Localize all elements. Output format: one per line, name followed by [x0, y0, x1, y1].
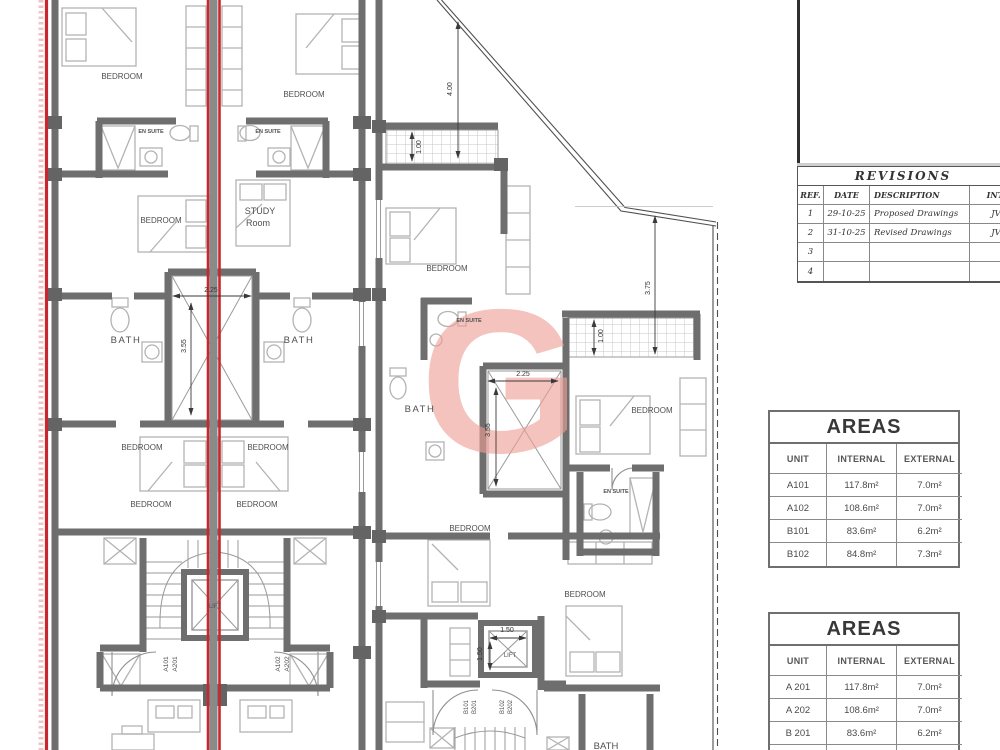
column-header: EXTERNAL [897, 646, 962, 676]
table-cell: B 201 [770, 722, 827, 745]
table-cell: 84.8m² [827, 543, 897, 566]
room-label: Room [246, 218, 270, 228]
unit-label: B202 [508, 699, 514, 714]
room-label: LIFT [504, 653, 517, 659]
column-header: INTERNAL [827, 646, 897, 676]
dimension-label: 1.50 [500, 627, 514, 634]
table-cell: 7.0m² [897, 699, 962, 722]
floor-plan-sheet: G 2.253.554.001.002.253.551.003.751.501.… [0, 0, 1000, 750]
bed-symbol [386, 208, 456, 264]
bed-symbol [576, 396, 650, 454]
room-label: BEDROOM [449, 524, 491, 533]
room-label: EN SUITE [603, 489, 629, 495]
table-cell: 6.2m² [897, 520, 962, 543]
room-label: BATH [111, 335, 142, 346]
unit-label: A201 [172, 656, 179, 672]
unit-label: A101 [163, 656, 170, 672]
table-cell: 83.6m² [827, 722, 897, 745]
table-cell: 2 [798, 224, 824, 243]
table-cell: A 202 [770, 699, 827, 722]
room-label: STUDY [245, 206, 276, 216]
table-cell: JV [970, 205, 1000, 224]
unit-label: B201 [472, 699, 478, 714]
areas-title: AREAS [768, 612, 960, 646]
door-swing [112, 468, 634, 735]
areas-table-first-floor: AREAS UNITINTERNALEXTERNALA101117.8m²7.0… [768, 410, 960, 568]
revisions-title: REVISIONS [797, 166, 1000, 186]
table-cell: A102 [770, 497, 827, 520]
dimension-label: 1.00 [416, 140, 423, 154]
column-header: DATE [824, 186, 870, 205]
unit-label: A102 [275, 656, 282, 672]
table-cell: 3 [798, 243, 824, 262]
areas-grid: UNITINTERNALEXTERNALA 201117.8m²7.0m²A 2… [768, 646, 960, 750]
areas-table-second-floor: AREAS UNITINTERNALEXTERNALA 201117.8m²7.… [768, 612, 960, 750]
room-labels: BEDROOMBEDROOMEN SUITEEN SUITEBEDROOMSTU… [101, 72, 673, 750]
bed-symbol [62, 8, 136, 66]
room-label: LIFT [209, 604, 222, 610]
room-label: BEDROOM [426, 264, 468, 273]
table-cell: B102 [770, 543, 827, 566]
table-cell: 108.6m² [827, 699, 897, 722]
table-cell: 117.8m² [827, 474, 897, 497]
table-cell: 6.2m² [897, 722, 962, 745]
kitchen-counter [148, 700, 424, 742]
table-cell: Proposed Drawings [870, 205, 970, 224]
room-label: BEDROOM [283, 90, 325, 99]
column-header: UNIT [770, 444, 827, 474]
revisions-grid: REF.DATEDESCRIPTIONINT.129-10-25Proposed… [797, 186, 1000, 283]
unit-label: B101 [464, 699, 470, 714]
dimension-label: 3.75 [645, 281, 652, 295]
areas-grid: UNITINTERNALEXTERNALA101117.8m²7.0m²A102… [768, 444, 960, 568]
table-cell: Revised Drawings [870, 224, 970, 243]
table-cell: 29-10-25 [824, 205, 870, 224]
table-cell: 7.0m² [897, 676, 962, 699]
dimension-label: 1.00 [598, 329, 605, 343]
table-cell: 83.6m² [827, 520, 897, 543]
table-cell: 1 [798, 205, 824, 224]
room-label: BATH [405, 404, 436, 415]
room-label: BEDROOM [130, 500, 172, 509]
room-label: EN SUITE [255, 129, 281, 135]
room-label: EN SUITE [138, 129, 164, 135]
table-cell: B101 [770, 520, 827, 543]
table-cell: JV [970, 224, 1000, 243]
unit-label: B102 [500, 699, 506, 714]
title-block [797, 0, 1000, 163]
room-label: BEDROOM [247, 443, 289, 452]
table-cell: 84.8m² [827, 745, 897, 750]
areas-title: AREAS [768, 410, 960, 444]
dimension-label: 2.25 [516, 371, 530, 378]
table-cell [970, 262, 1000, 281]
unit-label: A202 [284, 656, 291, 672]
room-label: BEDROOM [140, 216, 182, 225]
dimension-label: 3.55 [181, 339, 188, 353]
table-cell [970, 243, 1000, 262]
revisions-table: REVISIONS REF.DATEDESCRIPTIONINT.129-10-… [797, 166, 1000, 283]
table-cell: A101 [770, 474, 827, 497]
table-cell [870, 243, 970, 262]
table-cell: 7.0m² [897, 497, 962, 520]
dimension-label: 2.25 [204, 287, 218, 294]
table-cell: B 202 [770, 745, 827, 750]
column-header: REF. [798, 186, 824, 205]
table-cell: 4 [798, 262, 824, 281]
room-label: BATH [594, 741, 619, 750]
table-cell: 7.3m² [897, 745, 962, 750]
room-label: BEDROOM [564, 590, 606, 599]
column-header: EXTERNAL [897, 444, 962, 474]
bed-symbol [296, 14, 364, 74]
table-cell: 7.3m² [897, 543, 962, 566]
column-header: INT. [970, 186, 1000, 205]
column-header: INTERNAL [827, 444, 897, 474]
room-label: BEDROOM [631, 406, 673, 415]
table-cell [824, 243, 870, 262]
table-cell: A 201 [770, 676, 827, 699]
column-header: DESCRIPTION [870, 186, 970, 205]
table-cell [824, 262, 870, 281]
room-label: BATH [284, 335, 315, 346]
table-cell: 108.6m² [827, 497, 897, 520]
table-cell: 117.8m² [827, 676, 897, 699]
dimension-label: 4.00 [447, 82, 454, 96]
room-label: BEDROOM [236, 500, 278, 509]
column-header: UNIT [770, 646, 827, 676]
walls [55, 0, 700, 750]
dimension-label: 3.55 [485, 423, 492, 437]
room-label: BEDROOM [101, 72, 143, 81]
bed-symbol [428, 540, 490, 606]
bed-symbol [566, 606, 622, 676]
room-label: EN SUITE [456, 318, 482, 324]
table-cell: 31-10-25 [824, 224, 870, 243]
dimension-label: 1.50 [477, 647, 484, 661]
table-cell [870, 262, 970, 281]
room-label: BEDROOM [121, 443, 163, 452]
logo-watermark: G [420, 267, 579, 496]
table-cell: 7.0m² [897, 474, 962, 497]
